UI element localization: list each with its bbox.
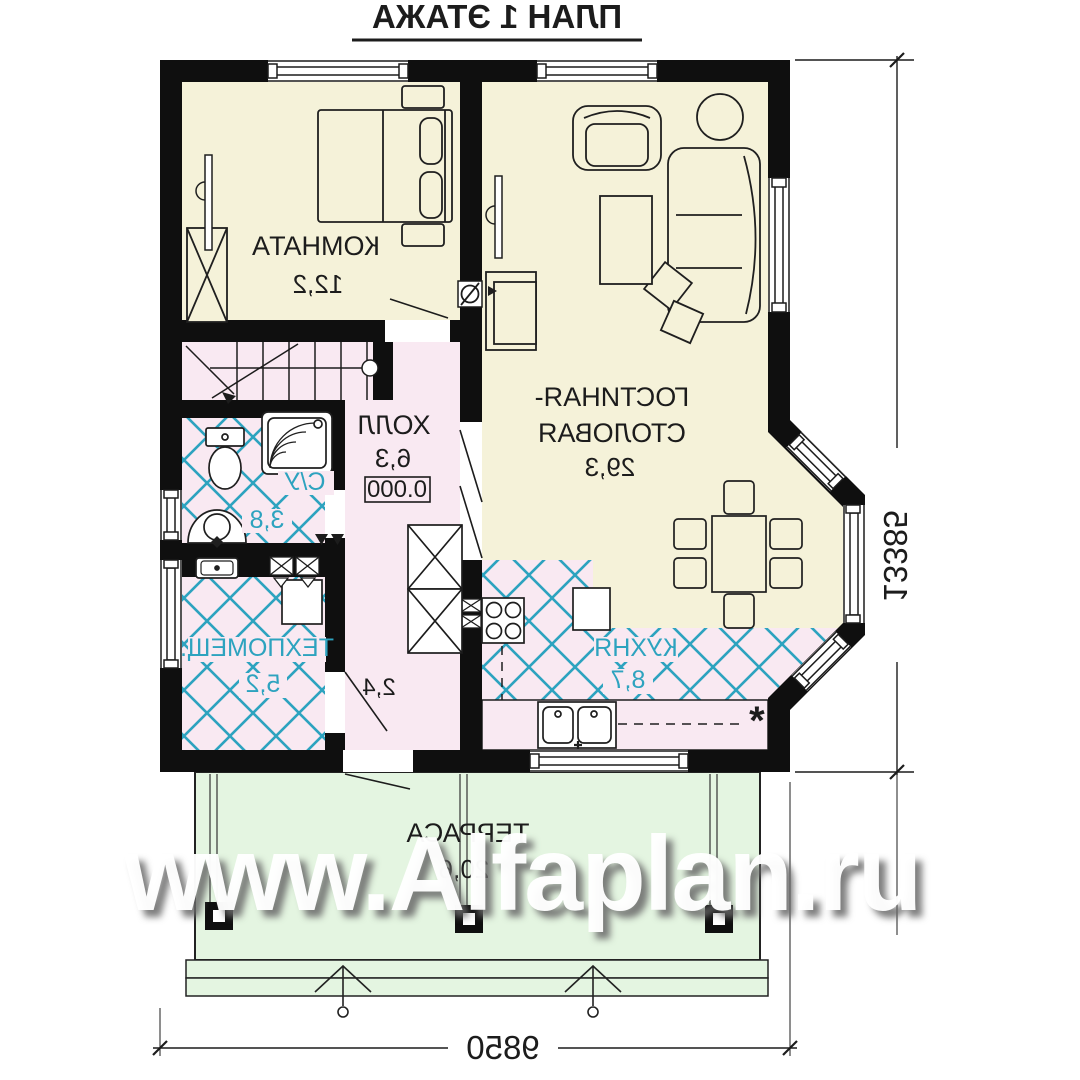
terrace-step-2	[186, 978, 768, 996]
tech-sink	[196, 558, 238, 578]
chimney-box	[458, 281, 482, 307]
dining-chair	[770, 519, 802, 549]
pillow	[420, 172, 442, 218]
door-opening-entry	[343, 750, 413, 772]
passage-living-hall	[460, 430, 482, 558]
page-title: ПЛАН 1 ЭТАЖА	[372, 0, 622, 35]
room-label-kitchen: КУХНЯ	[594, 634, 678, 662]
wall-living-left	[460, 82, 482, 422]
room-area-hall: 6,3	[375, 443, 411, 473]
pillow	[420, 118, 442, 164]
kitchen-counter	[482, 700, 768, 750]
coffee-table	[600, 196, 652, 284]
room-label-living-1: ГОСТИНАЯ-	[535, 382, 690, 412]
side-table	[697, 94, 743, 140]
stove	[482, 598, 524, 643]
boiler	[282, 580, 322, 624]
room-label-hall: ХОЛЛ	[357, 410, 430, 440]
window-living-top	[537, 60, 657, 82]
room-area-living: 29,3	[585, 452, 636, 482]
hall-closets	[408, 525, 462, 653]
dimension-vertical-value: 13385	[877, 510, 914, 602]
window-bay-front	[843, 505, 865, 623]
terrace-step-1	[186, 960, 768, 978]
dining-chair	[724, 481, 754, 514]
room-label-bedroom: КОМНАТА	[252, 231, 380, 261]
dining-chair	[674, 558, 706, 588]
room-area-bedroom: 12,2	[293, 269, 344, 299]
door-opening-bathroom	[325, 490, 345, 538]
nightstand	[402, 224, 444, 246]
window-living-right	[768, 178, 790, 312]
dining-table	[712, 516, 766, 592]
kitchen-sink	[538, 702, 616, 749]
room-area-terrace: 20,6	[439, 854, 490, 884]
shower	[262, 412, 332, 474]
kitchen-note: *	[749, 699, 765, 743]
window-kitchen-bottom	[530, 750, 688, 772]
toilet	[206, 428, 244, 489]
terrace	[186, 772, 768, 1017]
room-area-kitchen: 8,7	[611, 666, 646, 694]
door-opening-tech	[325, 672, 345, 733]
dining-chair	[770, 558, 802, 588]
fridge	[573, 588, 610, 630]
wall-bedroom-bottom	[182, 320, 385, 342]
cabinet	[486, 272, 536, 350]
floor-plan-canvas: ПЛАН 1 ЭТАЖА КОМНАТА 12,2 ГОСТИНАЯ- СТОЛ…	[0, 0, 1080, 1080]
window-bathroom-left	[160, 490, 182, 540]
bed	[318, 86, 452, 246]
elevation-value: 0.000	[367, 476, 427, 503]
room-label-bathroom: С/У	[284, 468, 325, 496]
room-label-terrace: ТЕРРАСА	[406, 818, 529, 848]
armchair	[573, 106, 661, 170]
door-opening-bedroom	[385, 320, 450, 342]
room-area-tech: 5,2	[246, 670, 281, 698]
room-label-tech: ТЕХПОМЕЩ.	[180, 634, 334, 662]
room-area-corridor: 2,4	[362, 674, 395, 701]
dining-chair	[724, 594, 754, 628]
nightstand	[402, 86, 444, 108]
window-bedroom-top	[268, 60, 408, 82]
window-tech-left	[160, 560, 182, 668]
dimension-horizontal-value: 9850	[466, 1029, 539, 1066]
room-area-bathroom: 3,8	[250, 506, 285, 534]
room-label-living-2: СТОЛОВАЯ	[538, 418, 686, 448]
dining-chair	[674, 519, 706, 549]
stairs-newel	[362, 360, 378, 376]
